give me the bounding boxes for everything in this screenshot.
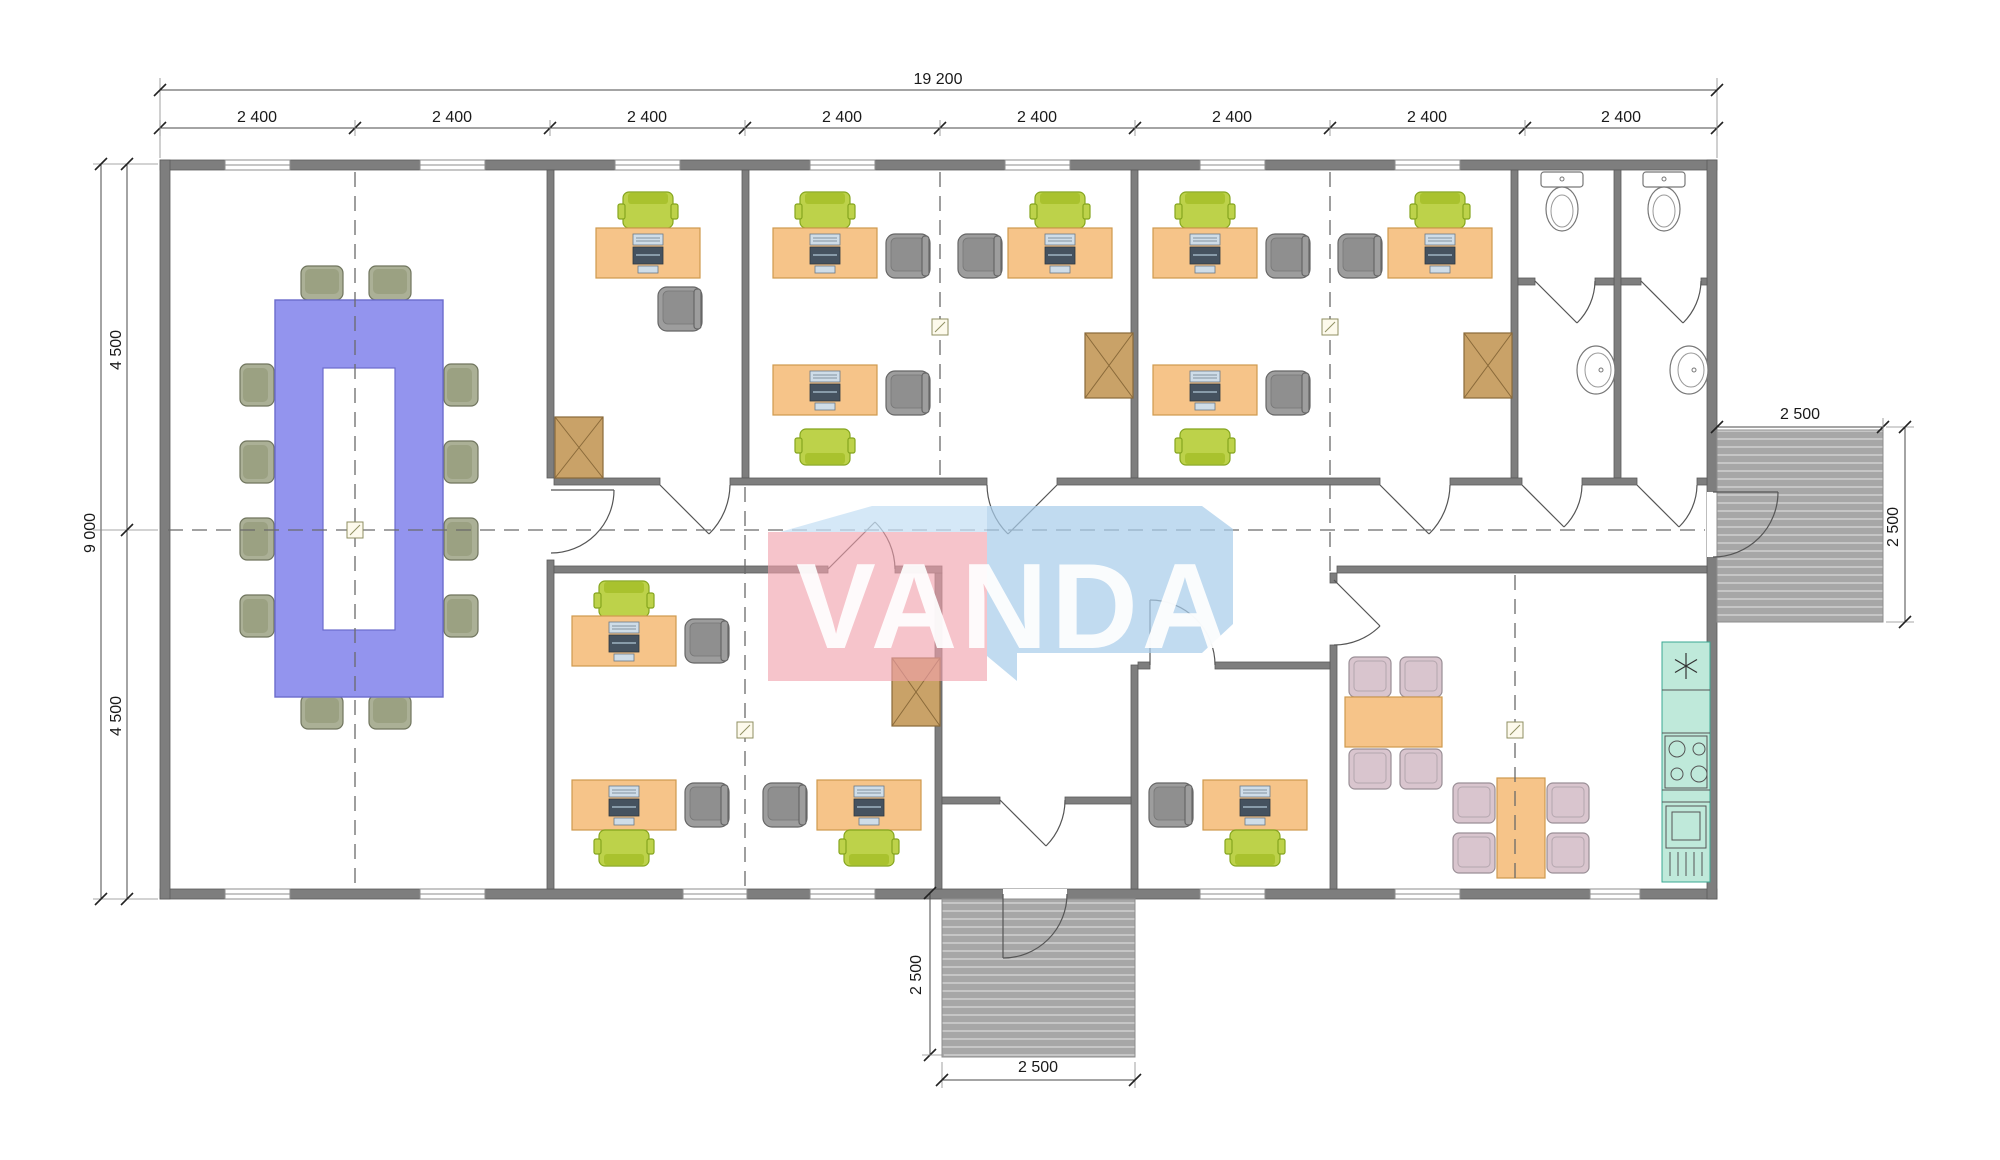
door-conference xyxy=(551,490,614,553)
guest-chair xyxy=(886,371,930,415)
task-chair xyxy=(795,429,855,465)
dining-chair xyxy=(1400,749,1442,789)
guest-chair xyxy=(658,287,702,331)
toilet xyxy=(1541,172,1583,231)
dining-chair xyxy=(1547,833,1589,873)
dim-half-depth: 4 500 xyxy=(108,696,125,736)
dim-east-porch-depth: 2 500 xyxy=(1885,507,1902,547)
dining-area xyxy=(1345,657,1589,878)
window xyxy=(683,889,747,899)
dining-chair xyxy=(1547,783,1589,823)
conference-chair xyxy=(444,595,478,637)
dim-bay: 2 400 xyxy=(1407,109,1447,126)
wall-corridor-north-1 xyxy=(554,478,660,485)
wall-exterior-south xyxy=(160,889,1717,899)
window xyxy=(810,160,875,170)
conference-chair xyxy=(301,695,343,729)
wall-wc1-mid-1 xyxy=(1518,278,1535,285)
window xyxy=(810,889,875,899)
cabinet xyxy=(1085,333,1133,398)
conference-room xyxy=(240,266,478,729)
task-chair xyxy=(594,830,654,866)
conference-chair xyxy=(240,518,274,560)
column-symbol xyxy=(347,522,363,538)
conference-chair xyxy=(444,364,478,406)
task-chair xyxy=(839,830,899,866)
vanda-watermark: VANDA xyxy=(768,506,1233,681)
wall-conference-east-lower xyxy=(547,560,554,889)
dim-bay: 2 400 xyxy=(432,109,472,126)
task-chair xyxy=(1030,192,1090,228)
wall-corridor-north-6 xyxy=(1697,478,1707,485)
dim-south-porch-depth: 2 500 xyxy=(908,955,925,995)
guest-chair xyxy=(886,234,930,278)
guest-chair xyxy=(763,783,807,827)
wall-dining-west xyxy=(1330,645,1337,889)
south-porch-deck xyxy=(942,899,1135,1057)
wall-vestibule-north-1 xyxy=(942,797,1000,804)
dim-bay: 2 400 xyxy=(237,109,277,126)
toilet xyxy=(1643,172,1685,231)
wall-wc-divider xyxy=(1614,170,1621,478)
conference-table-opening xyxy=(323,368,395,630)
window xyxy=(1200,160,1265,170)
dining-chair xyxy=(1453,833,1495,873)
floor-plan-drawing: 19 200 2 400 2 400 2 400 2 400 2 400 2 4… xyxy=(0,0,2000,1160)
dim-east-porch-width: 2 500 xyxy=(1780,406,1820,423)
window xyxy=(1590,889,1640,899)
office-desk xyxy=(1153,228,1257,278)
task-chair xyxy=(795,192,855,228)
wall-corridor-south-3 xyxy=(1337,566,1707,573)
conference-chair xyxy=(369,266,411,300)
guest-chair xyxy=(685,619,729,663)
conference-chair xyxy=(444,441,478,483)
guest-chair xyxy=(685,783,729,827)
dim-bay: 2 400 xyxy=(1212,109,1252,126)
wall-wc2-mid-1 xyxy=(1621,278,1641,285)
opening-main-entrance xyxy=(1003,889,1067,899)
dining-chair xyxy=(1349,749,1391,789)
cabinet xyxy=(1464,333,1512,398)
guest-chair xyxy=(1149,783,1193,827)
guest-chair xyxy=(1338,234,1382,278)
watermark-blue-band xyxy=(780,506,987,532)
wall-office-divider-2 xyxy=(1131,170,1138,478)
floor-plan-page: 19 200 2 400 2 400 2 400 2 400 2 400 2 4… xyxy=(0,0,2000,1160)
wall-conference-east-upper xyxy=(547,170,554,478)
office-desk xyxy=(773,228,877,278)
cabinet xyxy=(555,417,603,478)
conference-chair xyxy=(240,364,274,406)
column-symbol xyxy=(737,722,753,738)
office-f xyxy=(1149,780,1307,866)
office-desk xyxy=(1153,365,1257,415)
task-chair xyxy=(1175,429,1235,465)
door-office-c xyxy=(1380,485,1450,534)
door-wc1-stall xyxy=(1535,281,1595,323)
dim-half-depth: 4 500 xyxy=(108,330,125,370)
guest-chair xyxy=(1266,371,1310,415)
window xyxy=(225,889,290,899)
wall-corridor-north-3 xyxy=(1057,478,1380,485)
sink xyxy=(1670,346,1708,394)
door-office-a xyxy=(660,485,730,534)
wall-officeF-north-2 xyxy=(1215,662,1330,669)
office-b xyxy=(773,192,1133,465)
office-desk xyxy=(572,780,676,830)
window xyxy=(420,160,485,170)
dim-bay: 2 400 xyxy=(822,109,862,126)
watermark-logo-text: VANDA xyxy=(796,538,1232,674)
door-vestibule xyxy=(1000,800,1065,846)
office-desk xyxy=(596,228,700,278)
dim-bay: 2 400 xyxy=(627,109,667,126)
kitchen xyxy=(1662,642,1710,882)
window xyxy=(1395,160,1460,170)
office-desk xyxy=(817,780,921,830)
opening-east-porch xyxy=(1707,492,1717,557)
dining-table xyxy=(1497,778,1545,878)
wall-wc1-mid-2 xyxy=(1595,278,1614,285)
door-dining xyxy=(1334,580,1380,645)
column-symbol xyxy=(1322,319,1338,335)
dim-bay: 2 400 xyxy=(1601,109,1641,126)
door-wc1 xyxy=(1522,485,1582,527)
conference-chair xyxy=(240,441,274,483)
wall-wc-west xyxy=(1511,170,1518,478)
conference-chair xyxy=(444,518,478,560)
column-symbol xyxy=(1507,722,1523,738)
wall-wc2-mid-2 xyxy=(1701,278,1707,285)
conference-chair xyxy=(301,266,343,300)
window xyxy=(615,160,680,170)
office-desk xyxy=(572,616,676,666)
window xyxy=(1200,889,1265,899)
conference-chair xyxy=(369,695,411,729)
conference-chair xyxy=(240,595,274,637)
office-desk xyxy=(1008,228,1112,278)
dining-table xyxy=(1345,697,1442,747)
dim-south-porch-width: 2 500 xyxy=(1018,1059,1058,1076)
wall-corridor-north-5 xyxy=(1582,478,1637,485)
guest-chair xyxy=(1266,234,1310,278)
window xyxy=(1395,889,1460,899)
task-chair xyxy=(594,581,654,617)
door-wc2-stall xyxy=(1641,281,1701,323)
office-e xyxy=(763,780,921,866)
guest-chair xyxy=(958,234,1002,278)
task-chair xyxy=(1225,830,1285,866)
dining-chair xyxy=(1349,657,1391,697)
wall-vestibule-east xyxy=(1131,665,1138,889)
wall-corridor-north-4 xyxy=(1450,478,1522,485)
sink xyxy=(1577,346,1615,394)
door-wc2 xyxy=(1637,485,1697,527)
dim-total-width: 19 200 xyxy=(914,71,963,88)
task-chair xyxy=(618,192,678,228)
window xyxy=(1005,160,1070,170)
wall-exterior-north xyxy=(160,160,1717,170)
office-desk xyxy=(1203,780,1307,830)
column-symbol xyxy=(932,319,948,335)
window xyxy=(420,889,485,899)
office-desk xyxy=(1388,228,1492,278)
dim-bay: 2 400 xyxy=(1017,109,1057,126)
office-a xyxy=(555,192,702,478)
east-porch-deck xyxy=(1717,430,1883,622)
dining-chair xyxy=(1400,657,1442,697)
task-chair xyxy=(1410,192,1470,228)
office-desk xyxy=(773,365,877,415)
task-chair xyxy=(1175,192,1235,228)
wall-vestibule-north-2 xyxy=(1065,797,1131,804)
office-d xyxy=(572,581,729,866)
wall-corridor-north-2 xyxy=(730,478,987,485)
window xyxy=(225,160,290,170)
dim-total-depth: 9 000 xyxy=(82,513,99,553)
wall-office-divider-1 xyxy=(742,170,749,478)
dining-chair xyxy=(1453,783,1495,823)
